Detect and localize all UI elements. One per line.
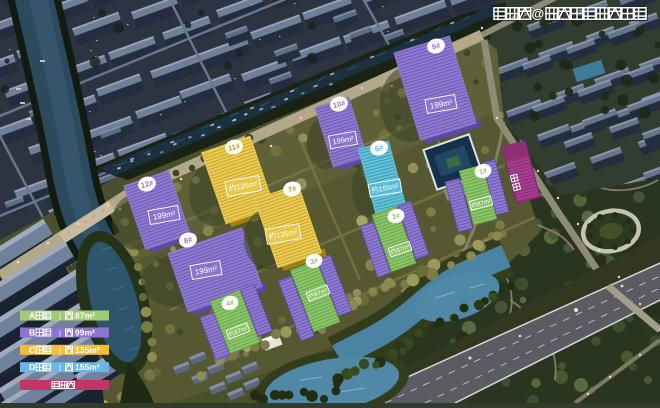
svg-text:155m²: 155m² (75, 362, 100, 372)
svg-text:87m²: 87m² (75, 311, 95, 321)
svg-text:|: | (59, 346, 61, 355)
svg-text:C: C (29, 345, 35, 355)
svg-text:A: A (29, 311, 35, 321)
svg-text:|: | (59, 363, 61, 372)
svg-text:B: B (29, 328, 35, 338)
svg-text:@: @ (532, 6, 545, 21)
svg-text:135m²: 135m² (75, 345, 100, 355)
svg-text:D: D (29, 362, 35, 372)
svg-text:|: | (59, 329, 61, 338)
svg-text:|: | (59, 312, 61, 321)
svg-text:99m²: 99m² (75, 328, 95, 338)
